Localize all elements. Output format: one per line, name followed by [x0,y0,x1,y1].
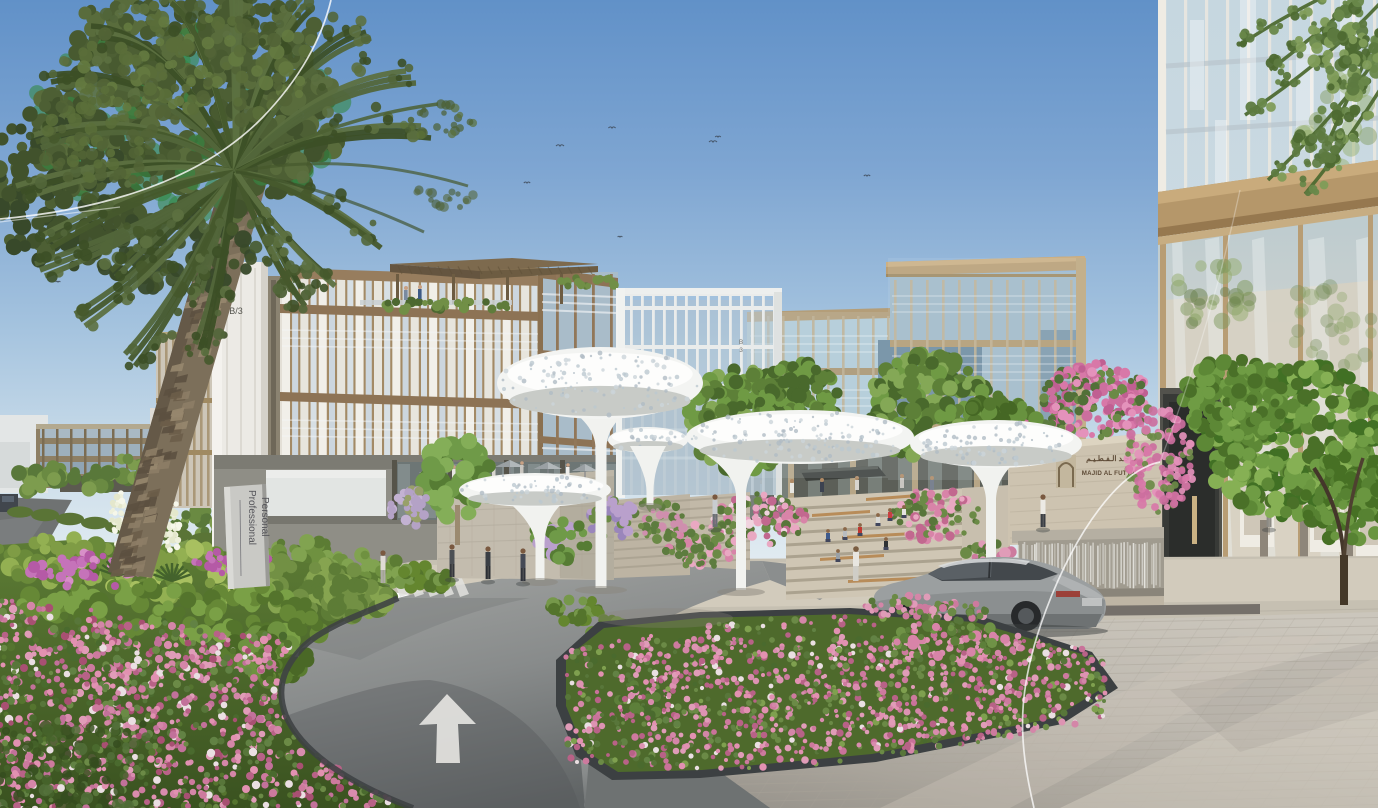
svg-text:B/3: B/3 [229,306,243,316]
